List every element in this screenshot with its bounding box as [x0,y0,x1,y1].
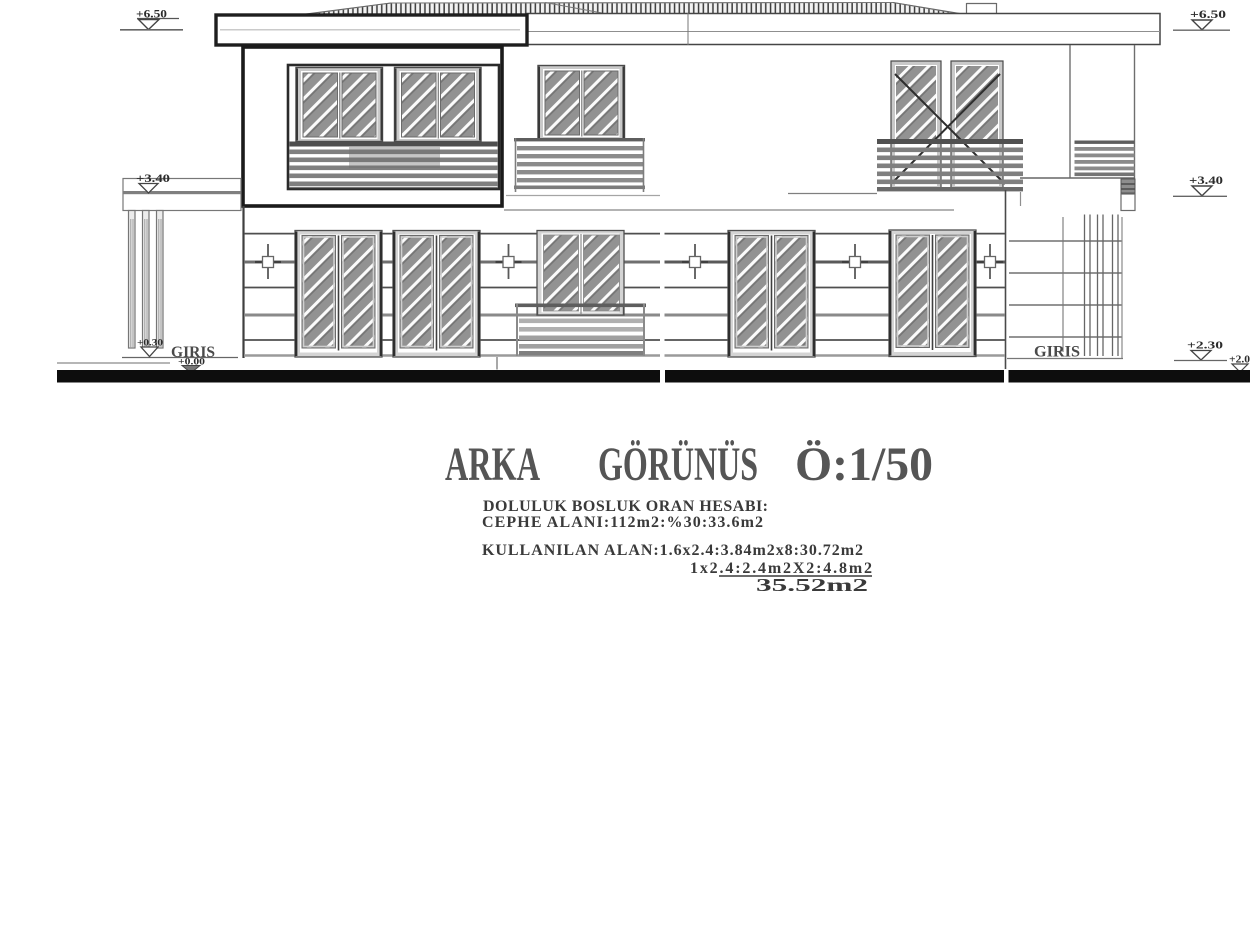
svg-text:GÖRÜNÜS: GÖRÜNÜS [598,438,758,491]
svg-text:Ö:1/50: Ö:1/50 [795,438,933,491]
svg-text:GIRIS: GIRIS [1034,344,1080,361]
svg-text:35.52m2: 35.52m2 [756,575,868,595]
svg-text:+2.30: +2.30 [1187,340,1224,352]
svg-text:+6.50: +6.50 [1190,9,1226,21]
svg-text:DOLULUK BOSLUK ORAN HESABI:: DOLULUK BOSLUK ORAN HESABI: [483,498,768,515]
svg-text:+3.40: +3.40 [1189,175,1223,187]
svg-text:ARKA: ARKA [445,438,540,491]
svg-text:CEPHE ALANI:112m2:%30:33.6m2: CEPHE ALANI:112m2:%30:33.6m2 [482,514,763,531]
svg-text:KULLANILAN ALAN:1.6x2.4:3.84m2: KULLANILAN ALAN:1.6x2.4:3.84m2x8:30.72m2 [482,542,863,559]
